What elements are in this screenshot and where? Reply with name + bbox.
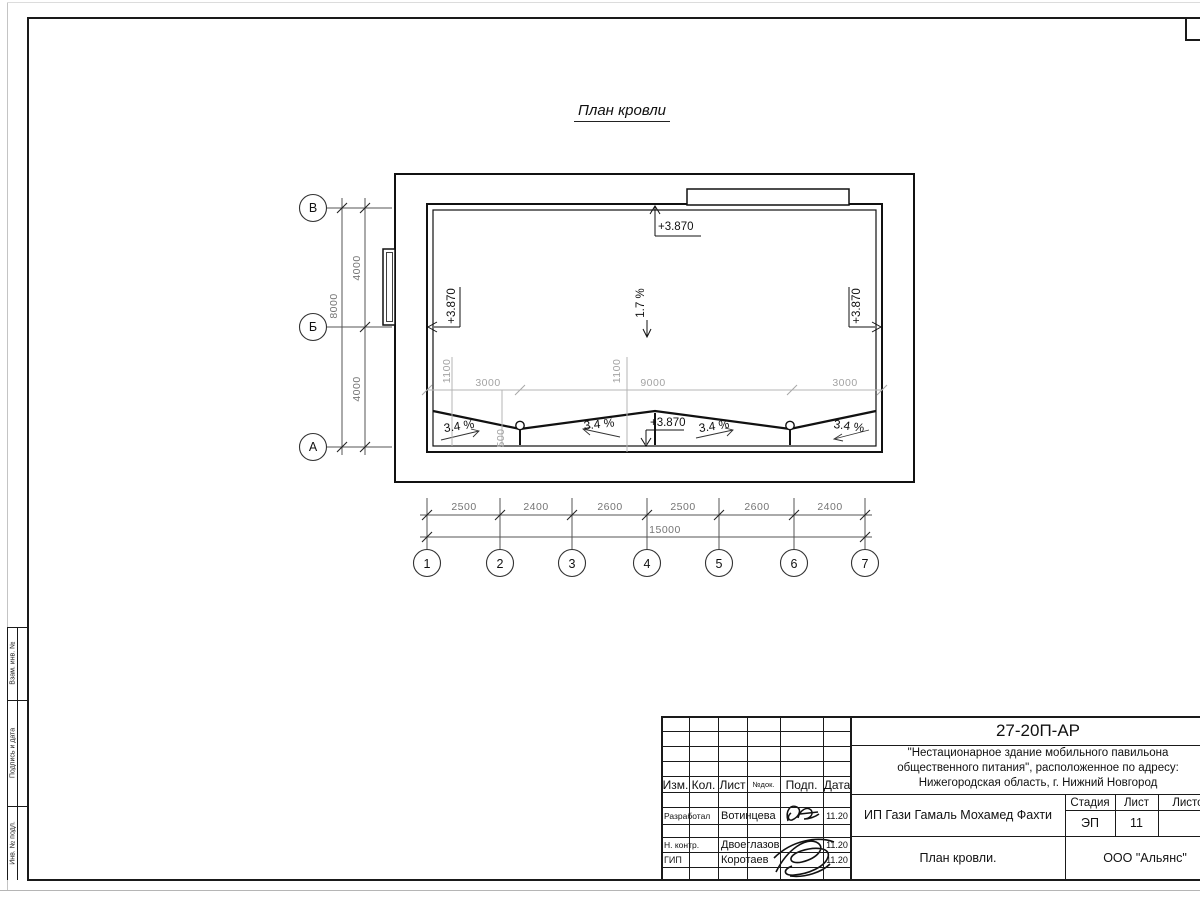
tb-doc-number: 27-20П-АР (851, 717, 1200, 745)
tb-col-data: Дата (823, 777, 851, 792)
tb-role: ГИП (664, 855, 682, 865)
tb-company: ООО "Альянс" (1065, 836, 1200, 880)
tb-client: ИП Гази Гамаль Мохамед Фахти (851, 794, 1065, 836)
tb-line (662, 746, 851, 747)
tb-col-podp: Подп. (780, 777, 823, 792)
tb-line (662, 731, 851, 732)
tb-col-list: Лист (718, 777, 747, 792)
tb-name: Двоеглазов (721, 839, 779, 851)
tb-date: 11.20 (823, 853, 851, 866)
tb-col-kol: Кол. (689, 777, 718, 792)
axis-row-label: В (309, 201, 317, 215)
tb-project-line: Нижегородская область, г. Нижний Новгоро… (919, 777, 1158, 789)
tb-line (662, 824, 851, 825)
col-dim-total: 15000 (649, 524, 681, 536)
tb-role: Разработал (664, 811, 710, 821)
row-dim-total: 8000 (328, 293, 340, 318)
axis-row-label: Б (309, 320, 317, 334)
axis-row-label: А (309, 440, 317, 454)
col-dim: 2500 (670, 501, 695, 513)
tb-date: 11.20 (823, 808, 851, 823)
col-dim-lines (420, 498, 872, 550)
tb-date: 11.20 (823, 838, 851, 851)
col-dim: 2400 (523, 501, 548, 513)
titleblock-left (661, 716, 663, 881)
tb-sheet-value: 11 (1115, 810, 1158, 836)
roof-hatch (687, 189, 849, 205)
tb-sheet-title: План кровли. (851, 836, 1065, 880)
row-dim-lines (327, 198, 392, 455)
col-dim: 2600 (744, 501, 769, 513)
axis-col-label: 3 (569, 557, 576, 571)
inner-dim: 1100 (441, 359, 453, 384)
main-slope-label: 1.7 % (635, 288, 647, 317)
tb-name: Коротаев (721, 854, 769, 866)
tb-project-line: общественного питания", расположенное по… (897, 762, 1179, 774)
tb-project-line: "Нестационарное здание мобильного павиль… (908, 747, 1169, 759)
tb-line (718, 717, 719, 880)
inner-dim: 9000 (640, 377, 665, 389)
elevation-mark: +3.870 (851, 288, 863, 324)
inner-dim: 3000 (832, 377, 857, 389)
tb-line (662, 761, 851, 762)
tb-sheets-value (1158, 810, 1200, 836)
drawing-sheet: Взам. инв. № Подпись и дата Инв. № подл.… (0, 0, 1200, 900)
tb-sheet-label: Лист (1115, 795, 1158, 810)
axis-col-label: 2 (497, 557, 504, 571)
col-dim: 2500 (451, 501, 476, 513)
left-canopy (383, 249, 395, 325)
axis-col-label: 5 (716, 557, 723, 571)
tb-stage-value: ЭП (1065, 810, 1115, 836)
tb-stage-label: Стадия (1065, 795, 1115, 810)
row-dim: 4000 (351, 376, 363, 401)
axis-col-label: 4 (644, 557, 651, 571)
inner-dim: 1100 (611, 359, 623, 384)
tb-sheets-label: Листов (1158, 795, 1200, 810)
axis-col-label: 1 (424, 557, 431, 571)
col-dim: 2600 (597, 501, 622, 513)
axis-col-label: 6 (791, 557, 798, 571)
tb-line (851, 745, 1200, 746)
tb-col-ndok: №док. (747, 777, 780, 792)
tb-line (662, 867, 851, 868)
elevation-mark: +3.870 (650, 417, 686, 429)
tb-line (689, 717, 690, 880)
elevation-mark: +3.870 (446, 288, 458, 324)
tb-name: Вотинцева (721, 810, 776, 822)
row-dim: 4000 (351, 255, 363, 280)
col-dim: 2400 (817, 501, 842, 513)
inner-dim: 3000 (475, 377, 500, 389)
axis-col-label: 7 (862, 557, 869, 571)
elevation-mark: +3.870 (658, 221, 694, 233)
signature-votintseva (787, 806, 819, 821)
tb-line (662, 792, 851, 793)
tb-col-izm: Изм. (662, 777, 689, 792)
tb-line (780, 717, 781, 880)
tb-role: Н. контр. (664, 840, 699, 850)
inner-dim: 500 (495, 428, 507, 447)
